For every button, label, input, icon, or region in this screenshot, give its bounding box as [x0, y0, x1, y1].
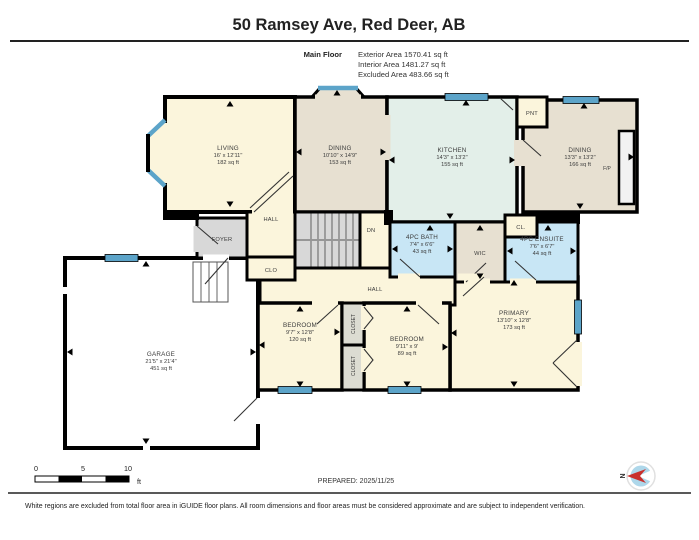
fp-label: F/P [603, 166, 611, 172]
window-primary [575, 300, 582, 334]
dining-rear-name: DINING [568, 147, 591, 154]
disclaimer-text: White regions are excluded from total fl… [25, 503, 585, 510]
closet-upper-label: CLOSET [351, 314, 357, 334]
bedroom-mid-dims: 9'11" x 9' [396, 344, 418, 350]
cl-label: CL. [516, 225, 526, 231]
stat-excluded-area: Excluded Area 483.66 sq ft [358, 70, 450, 79]
floor-plan-svg: 50 Ramsey Ave, Red Deer, AB Main Floor E… [0, 0, 699, 540]
ensuite-area: 44 sq ft [533, 251, 552, 257]
foyer-label: FOYER [212, 237, 233, 243]
dining-front-name: DINING [328, 145, 351, 152]
fireplace [619, 131, 634, 204]
scale-tick-0: 0 [34, 464, 38, 473]
primary-name: PRIMARY [499, 310, 530, 317]
garage-name: GARAGE [147, 351, 175, 358]
window-garage [105, 255, 138, 262]
bay-opening [162, 123, 168, 183]
clo-label: CLO [265, 268, 278, 274]
page-title: 50 Ramsey Ave, Red Deer, AB [233, 16, 466, 34]
floor-plan-page: 50 Ramsey Ave, Red Deer, AB Main Floor E… [0, 0, 699, 540]
living-area: 182 sq ft [217, 160, 239, 166]
bath-name: 4PC BATH [406, 234, 438, 241]
ensuite-name: 4PC ENSUITE [520, 236, 564, 243]
garage-area: 451 sq ft [150, 366, 172, 372]
scale-tick-5: 5 [81, 464, 85, 473]
rooms [65, 88, 637, 448]
scale-tick-10: 10 [124, 464, 132, 473]
compass: N [620, 462, 655, 490]
bedroom-left-name: BEDROOM [283, 322, 317, 329]
garage-dims: 21'5" x 21'4" [145, 359, 176, 365]
dining-front-area: 153 sq ft [329, 160, 351, 166]
compass-north-label: N [620, 473, 627, 478]
closet-lower-label: CLOSET [351, 356, 357, 376]
primary-area: 173 sq ft [503, 325, 525, 331]
bedroom-mid-area: 89 sq ft [398, 351, 417, 357]
bedroom-left-dims: 9'7" x 12'8" [286, 330, 314, 336]
wall-filler-foyer [163, 210, 199, 220]
dn-label: DN [367, 228, 376, 234]
stat-interior-area: Interior Area 1481.27 sq ft [358, 60, 446, 69]
window-bedroom-mid [388, 387, 421, 394]
prepared-date: PREPARED: 2025/11/25 [318, 478, 395, 485]
dining-front-dims: 10'10" x 14'9" [323, 153, 357, 159]
primary-dims: 13'10" x 12'8" [497, 318, 531, 324]
room-primary [450, 277, 578, 390]
scale-unit: ft [137, 477, 141, 486]
living-name: LIVING [217, 145, 239, 152]
bedroom-mid-name: BEDROOM [390, 336, 424, 343]
dining-rear-dims: 13'3" x 13'2" [564, 155, 595, 161]
window-bedroom-left [278, 387, 312, 394]
entry-steps [193, 262, 228, 302]
room-bedroom-left [258, 303, 342, 390]
bath-dims: 7'4" x 6'6" [410, 242, 435, 248]
window-dining-rear [563, 97, 599, 104]
kitchen-dims: 14'3" x 13'2" [436, 155, 467, 161]
living-dims: 16' x 12'11" [214, 153, 243, 159]
hall-lower-label: HALL [367, 287, 382, 293]
dining-rear-area: 166 sq ft [569, 162, 591, 168]
kitchen-area: 155 sq ft [441, 162, 463, 168]
pnt-label: PNT [526, 111, 538, 117]
ensuite-dims: 7'6" x 6'7" [530, 244, 555, 250]
bedroom-left-area: 120 sq ft [289, 337, 311, 343]
floor-label: Main Floor [304, 50, 342, 59]
scale-bar: 0 5 10 ft [34, 464, 141, 486]
kitchen-name: KITCHEN [437, 147, 466, 154]
bath-area: 43 sq ft [413, 249, 432, 255]
window-kitchen [445, 94, 488, 101]
hall-upper-label: HALL [263, 217, 278, 223]
wic-label: WIC [474, 251, 486, 257]
stat-exterior-area: Exterior Area 1570.41 sq ft [358, 50, 449, 59]
